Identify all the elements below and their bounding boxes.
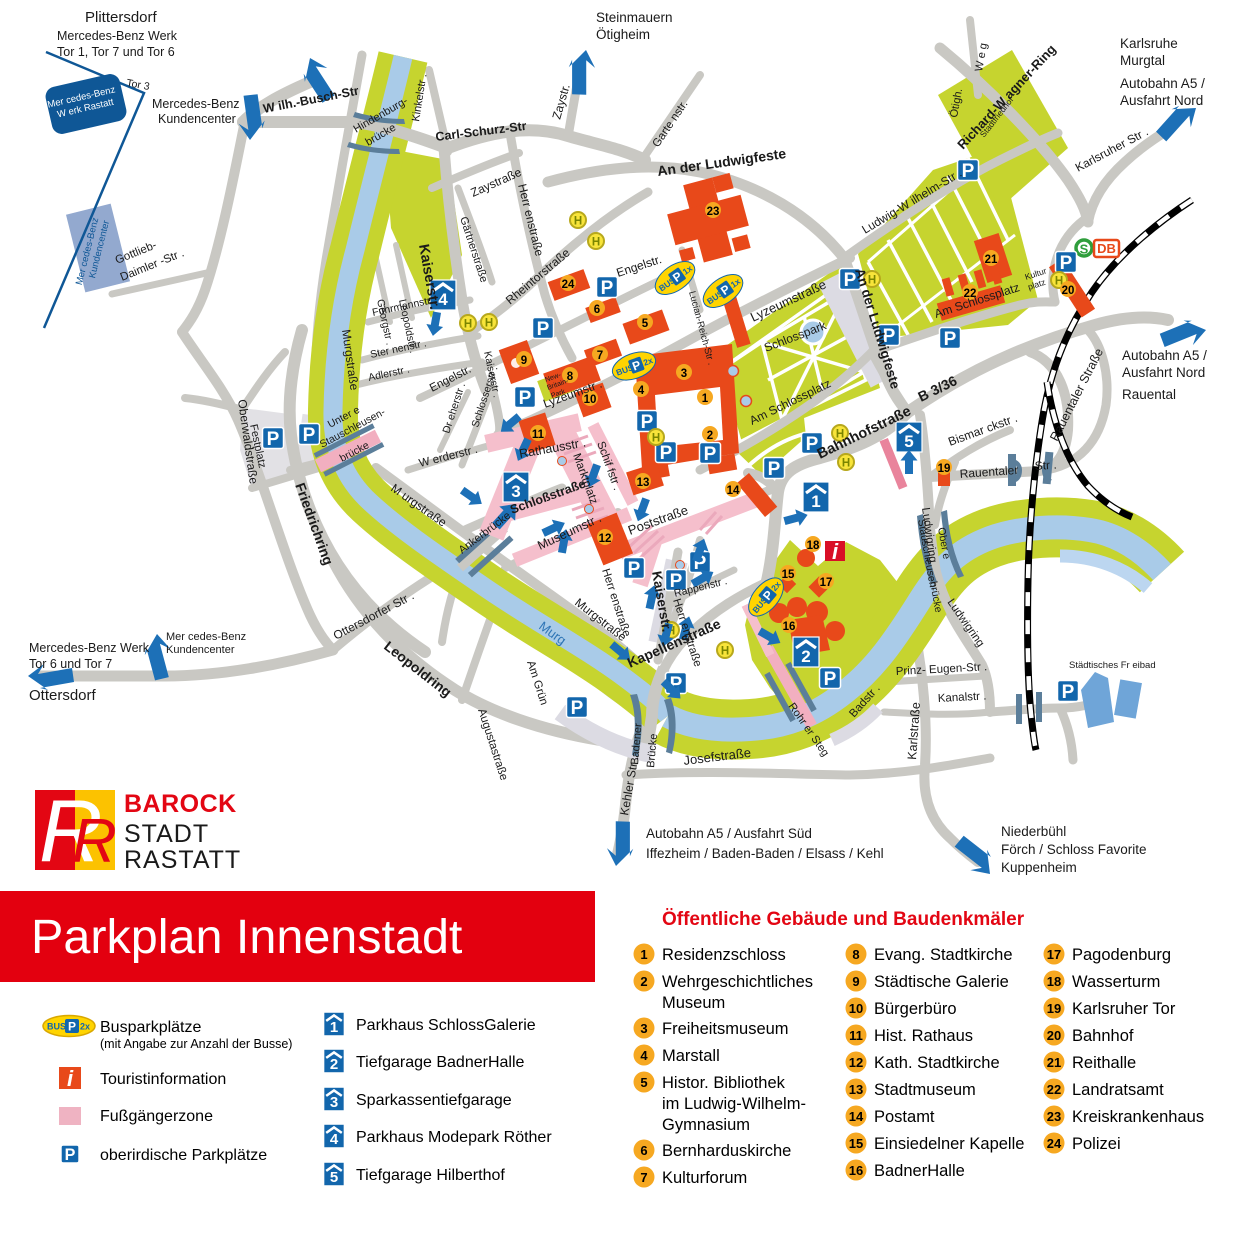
svg-text:Kundencenter: Kundencenter [158, 112, 236, 126]
svg-text:15: 15 [782, 569, 795, 581]
svg-text:8: 8 [852, 947, 859, 962]
svg-text:3: 3 [511, 482, 520, 501]
svg-text:6: 6 [640, 1143, 647, 1158]
svg-text:Kulturforum: Kulturforum [662, 1169, 747, 1187]
svg-text:Tor 1, Tor 7 und Tor 6: Tor 1, Tor 7 und Tor 6 [57, 45, 175, 59]
svg-text:Landratsamt: Landratsamt [1072, 1081, 1164, 1099]
svg-text:Sparkassentiefgarage: Sparkassentiefgarage [356, 1092, 512, 1109]
svg-text:Stadtmuseum: Stadtmuseum [874, 1081, 976, 1099]
svg-text:14: 14 [849, 1109, 864, 1124]
svg-text:Einsiedelner Kapelle: Einsiedelner Kapelle [874, 1135, 1024, 1153]
svg-text:19: 19 [938, 463, 951, 475]
svg-text:Mercedes-Benz Werk: Mercedes-Benz Werk [29, 641, 150, 655]
svg-text:Rauental: Rauental [1122, 387, 1176, 402]
svg-text:im Ludwig-Wilhelm-: im Ludwig-Wilhelm- [662, 1095, 806, 1113]
svg-text:Autobahn A5 /: Autobahn A5 / [1120, 76, 1205, 91]
svg-text:9: 9 [521, 355, 527, 367]
svg-text:4: 4 [640, 1048, 648, 1063]
svg-text:1: 1 [702, 393, 709, 405]
svg-text:Öffentliche Gebäude und Bauden: Öffentliche Gebäude und Baudenkmäler [662, 909, 1025, 930]
svg-text:P: P [68, 1020, 76, 1034]
svg-text:Bahnhof: Bahnhof [1072, 1027, 1134, 1045]
svg-text:20: 20 [1047, 1028, 1061, 1043]
svg-text:Parkhaus Modepark Röther: Parkhaus Modepark Röther [356, 1129, 552, 1146]
svg-text:Städtisches Fr eibad: Städtisches Fr eibad [1069, 660, 1156, 671]
svg-text:Tiefgarage Hilberthof: Tiefgarage Hilberthof [356, 1167, 505, 1184]
svg-text:14: 14 [727, 485, 740, 497]
svg-text:5: 5 [640, 1075, 647, 1090]
svg-text:RASTATT: RASTATT [124, 846, 241, 874]
svg-text:7: 7 [597, 350, 603, 362]
svg-text:13: 13 [637, 477, 650, 489]
svg-text:18: 18 [807, 540, 820, 552]
svg-text:Iffezheim / Baden-Baden / Elsa: Iffezheim / Baden-Baden / Elsass / Kehl [646, 846, 884, 861]
svg-text:Fußgängerzone: Fußgängerzone [100, 1108, 213, 1125]
svg-text:Parkplan Innenstadt: Parkplan Innenstadt [31, 910, 463, 964]
svg-text:17: 17 [820, 577, 833, 589]
svg-text:Murgtal: Murgtal [1120, 53, 1165, 68]
svg-text:Polizei: Polizei [1072, 1135, 1121, 1153]
svg-text:Museum: Museum [662, 994, 725, 1012]
svg-text:Marstall: Marstall [662, 1047, 720, 1065]
svg-text:9: 9 [852, 974, 859, 989]
svg-text:17: 17 [1047, 947, 1061, 962]
svg-text:18: 18 [1047, 974, 1061, 989]
svg-text:Busparkplätze: Busparkplätze [100, 1019, 201, 1036]
svg-text:Bürgerbüro: Bürgerbüro [874, 1000, 957, 1018]
svg-text:Autobahn A5 /: Autobahn A5 / [1122, 348, 1207, 363]
svg-text:oberirdische Parkplätze: oberirdische Parkplätze [100, 1147, 267, 1164]
svg-text:DB: DB [1097, 241, 1116, 256]
svg-text:12: 12 [849, 1055, 863, 1070]
svg-text:Postamt: Postamt [874, 1108, 935, 1126]
svg-text:Plittersdorf: Plittersdorf [85, 9, 158, 26]
svg-text:21: 21 [1047, 1055, 1061, 1070]
svg-text:3: 3 [330, 1094, 338, 1111]
svg-text:5: 5 [642, 318, 649, 330]
svg-text:BadnerHalle: BadnerHalle [874, 1162, 965, 1180]
svg-text:2: 2 [330, 1056, 338, 1073]
svg-text:Karlsruhe: Karlsruhe [1120, 36, 1178, 51]
svg-text:Evang. Stadtkirche: Evang. Stadtkirche [874, 946, 1013, 964]
svg-text:21: 21 [985, 254, 998, 266]
svg-text:3: 3 [640, 1021, 647, 1036]
svg-text:R: R [72, 807, 117, 876]
svg-text:Pagodenburg: Pagodenburg [1072, 946, 1171, 964]
svg-text:Mercedes-Benz Werk: Mercedes-Benz Werk [57, 29, 178, 43]
svg-text:15: 15 [849, 1136, 863, 1151]
svg-text:Förch / Schloss Favorite: Förch / Schloss Favorite [1001, 842, 1147, 857]
svg-text:Ötigheim: Ötigheim [596, 27, 650, 42]
svg-text:Reithalle: Reithalle [1072, 1054, 1136, 1072]
svg-text:Kath. Stadtkirche: Kath. Stadtkirche [874, 1054, 1000, 1072]
svg-text:BAROCK: BAROCK [124, 790, 237, 818]
svg-text:(mit Angabe zur Anzahl der Bus: (mit Angabe zur Anzahl der Busse) [100, 1037, 292, 1051]
svg-text:20: 20 [1062, 285, 1075, 297]
svg-text:6: 6 [594, 304, 600, 316]
svg-text:Hist. Rathaus: Hist. Rathaus [874, 1027, 973, 1045]
svg-text:Autobahn A5 / Ausfahrt Süd: Autobahn A5 / Ausfahrt Süd [646, 826, 812, 841]
svg-text:Bernharduskirche: Bernharduskirche [662, 1142, 791, 1160]
svg-text:Str .: Str . [1034, 457, 1057, 473]
svg-text:11: 11 [849, 1028, 863, 1043]
svg-text:Gymnasium: Gymnasium [662, 1116, 750, 1134]
svg-text:4: 4 [330, 1131, 339, 1148]
svg-text:Residenzschloss: Residenzschloss [662, 946, 786, 964]
svg-text:Wehrgeschichtliches: Wehrgeschichtliches [662, 973, 813, 991]
svg-text:4: 4 [638, 385, 645, 397]
svg-text:Touristinformation: Touristinformation [100, 1071, 226, 1088]
svg-text:Kundencenter: Kundencenter [166, 644, 235, 656]
svg-text:Kuppenheim: Kuppenheim [1001, 860, 1077, 875]
svg-text:Kanalstr .: Kanalstr . [938, 690, 987, 705]
svg-text:3: 3 [681, 368, 687, 380]
svg-text:S: S [1080, 242, 1089, 257]
svg-text:Niederbühl: Niederbühl [1001, 824, 1066, 839]
svg-text:1: 1 [330, 1019, 338, 1036]
svg-text:5: 5 [904, 432, 913, 451]
svg-text:Städtische Galerie: Städtische Galerie [874, 973, 1009, 991]
svg-text:11: 11 [532, 429, 545, 441]
svg-text:Ottersdorf: Ottersdorf [29, 687, 97, 704]
svg-text:Tor 6 und Tor 7: Tor 6 und Tor 7 [29, 657, 112, 671]
svg-text:i: i [67, 1066, 74, 1091]
svg-text:2: 2 [801, 647, 810, 666]
svg-text:1: 1 [640, 947, 647, 962]
svg-text:Steinmauern: Steinmauern [596, 10, 673, 25]
svg-text:BUS: BUS [47, 1022, 66, 1032]
svg-text:Parkhaus SchlossGalerie: Parkhaus SchlossGalerie [356, 1017, 536, 1034]
svg-text:23: 23 [707, 206, 720, 218]
svg-text:Ausfahrt Nord: Ausfahrt Nord [1122, 365, 1205, 380]
svg-text:19: 19 [1047, 1001, 1061, 1016]
svg-text:23: 23 [1047, 1109, 1061, 1124]
svg-text:Histor. Bibliothek: Histor. Bibliothek [662, 1074, 786, 1092]
svg-text:2: 2 [707, 430, 713, 442]
svg-text:24: 24 [1047, 1136, 1062, 1151]
svg-text:STADT: STADT [124, 820, 209, 848]
svg-text:Tiefgarage BadnerHalle: Tiefgarage BadnerHalle [356, 1054, 525, 1071]
svg-text:2x: 2x [80, 1022, 90, 1032]
svg-text:13: 13 [849, 1082, 863, 1097]
svg-text:10: 10 [849, 1001, 863, 1016]
svg-text:16: 16 [783, 621, 796, 633]
svg-text:12: 12 [599, 533, 612, 545]
svg-text:16: 16 [849, 1163, 863, 1178]
svg-text:5: 5 [330, 1169, 338, 1186]
svg-text:Kreiskrankenhaus: Kreiskrankenhaus [1072, 1108, 1204, 1126]
svg-text:Ausfahrt Nord: Ausfahrt Nord [1120, 93, 1203, 108]
svg-text:7: 7 [640, 1170, 647, 1185]
svg-text:Mercedes-Benz: Mercedes-Benz [152, 97, 240, 111]
svg-text:Mer cedes-Benz: Mer cedes-Benz [166, 631, 246, 643]
svg-text:1: 1 [811, 492, 820, 511]
svg-text:22: 22 [1047, 1082, 1061, 1097]
svg-text:Karlsruher Tor: Karlsruher Tor [1072, 1000, 1176, 1018]
svg-text:2: 2 [640, 974, 647, 989]
svg-text:24: 24 [562, 279, 575, 291]
svg-text:Freiheitsmuseum: Freiheitsmuseum [662, 1020, 789, 1038]
svg-text:Wasserturm: Wasserturm [1072, 973, 1160, 991]
